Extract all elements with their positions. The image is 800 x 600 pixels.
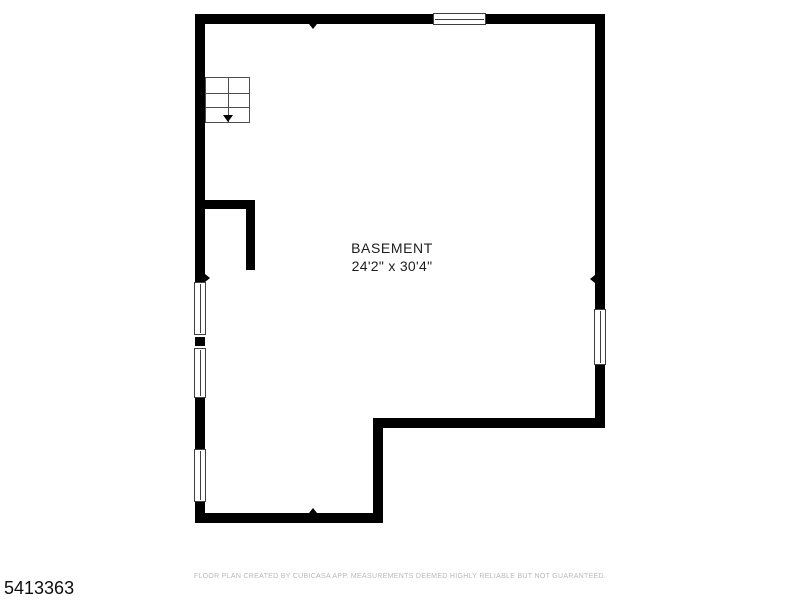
room-label: BASEMENT: [292, 239, 492, 257]
wall-left-upper-segment: [195, 14, 205, 282]
room-dimensions: 24'2" x 30'4": [292, 257, 492, 275]
window-left-1-icon: [194, 282, 206, 335]
window-pane-line: [200, 451, 201, 500]
window-pane-line: [435, 19, 484, 20]
disclaimer-text: FLOOR PLAN CREATED BY CUBICASA APP. MEAS…: [0, 573, 800, 580]
wall-bottom-segment: [195, 513, 383, 523]
window-pane-line: [600, 311, 601, 363]
room-label-group: BASEMENT 24'2" x 30'4": [292, 239, 492, 275]
wall-marker-left-icon: [205, 274, 210, 282]
window-top-icon: [433, 13, 486, 25]
floor-plan-page: BASEMENT 24'2" x 30'4" 5413363 FLOOR PLA…: [0, 0, 800, 600]
wall-right-upper-segment: [595, 14, 605, 309]
stairs-down-arrow-icon: [223, 115, 233, 122]
window-left-3-icon: [194, 449, 206, 502]
wall-marker-top-icon: [309, 24, 317, 29]
window-pane-line: [200, 284, 201, 333]
stairs-icon: [205, 77, 250, 123]
wall-top-left-segment: [195, 14, 433, 24]
listing-id: 5413363: [4, 578, 74, 599]
wall-left-middle-segment: [195, 398, 205, 450]
wall-interior-vertical: [246, 200, 255, 270]
wall-marker-right-icon: [590, 275, 595, 283]
wall-notch-vertical: [373, 418, 383, 523]
window-pane-line: [200, 350, 201, 396]
wall-top-right-segment: [486, 14, 605, 24]
wall-marker-bottom-icon: [309, 508, 317, 513]
wall-notch-horizontal: [373, 418, 605, 428]
wall-left-window-mullion: [195, 337, 205, 346]
window-right-icon: [594, 309, 606, 365]
window-left-2-icon: [194, 348, 206, 398]
